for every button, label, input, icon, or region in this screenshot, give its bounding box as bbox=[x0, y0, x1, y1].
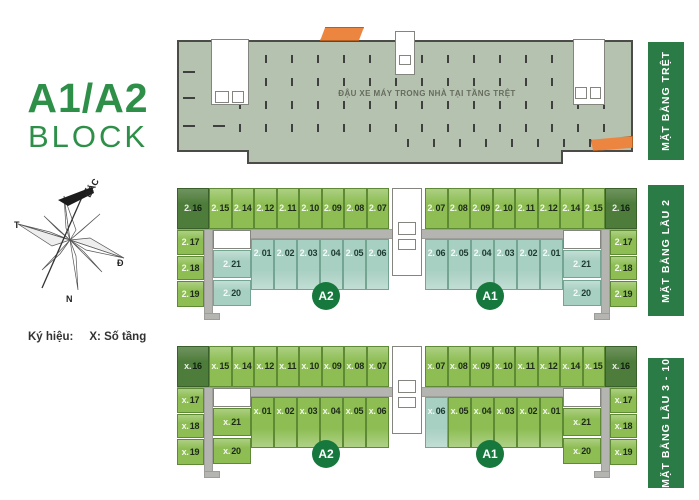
unit-a2-2-08: 2.08 bbox=[344, 188, 367, 229]
unit-floor-prefix: 2. bbox=[182, 238, 189, 247]
compass-rose: BẮC T Đ N bbox=[14, 176, 126, 304]
unit-a2-2-10: 2.10 bbox=[299, 188, 322, 229]
unit-floor-prefix: x. bbox=[301, 362, 308, 371]
unit-floor-prefix: x. bbox=[324, 362, 331, 371]
unit-number: 07 bbox=[435, 204, 445, 213]
unit-floor-prefix: x. bbox=[300, 407, 307, 416]
unit-a1-x-01: x.01 bbox=[540, 397, 563, 448]
stair-core-left-room bbox=[215, 91, 229, 103]
unit-number: 21 bbox=[231, 260, 241, 269]
unit-number: 11 bbox=[526, 362, 535, 371]
unit-a1-2-05: 2.05 bbox=[448, 239, 471, 290]
elevator-cab bbox=[398, 222, 416, 235]
unit-a2-2-05: 2.05 bbox=[343, 239, 366, 290]
unit-floor-prefix: 2. bbox=[256, 204, 263, 213]
unit-a1-x-02: x.02 bbox=[517, 397, 540, 448]
stair-core-left-room bbox=[232, 91, 244, 103]
unit-number: 17 bbox=[190, 238, 200, 247]
unit-floor-prefix: 2. bbox=[518, 204, 525, 213]
unit-number: 16 bbox=[620, 204, 630, 213]
unit-a1-x-18: x.18 bbox=[610, 414, 637, 438]
unit-number: 18 bbox=[190, 264, 200, 273]
unit-number: 09 bbox=[332, 362, 342, 371]
unit-a2-x-15: x.15 bbox=[209, 346, 232, 387]
unit-number: 01 bbox=[551, 249, 561, 258]
unit-number: 18 bbox=[623, 422, 633, 431]
unit-floor-prefix: 2. bbox=[277, 249, 284, 258]
unit-floor-prefix: 2. bbox=[585, 204, 592, 213]
block-name: A1/A2 bbox=[8, 78, 168, 119]
unit-number: 14 bbox=[570, 204, 580, 213]
corridor-vertical bbox=[601, 387, 610, 473]
side-label-ground-text: MẶT BẰNG TRỆT bbox=[660, 51, 672, 151]
unit-number: 11 bbox=[526, 204, 535, 213]
compass-north-label: BẮC bbox=[83, 177, 101, 199]
unit-number: 08 bbox=[458, 204, 468, 213]
unit-number: 20 bbox=[231, 289, 241, 298]
unit-floor-prefix: x. bbox=[612, 362, 619, 371]
unit-floor-prefix: 2. bbox=[300, 249, 307, 258]
unit-number: 12 bbox=[548, 362, 558, 371]
unit-number: 08 bbox=[458, 362, 468, 371]
unit-floor-prefix: 2. bbox=[346, 204, 353, 213]
side-label-level-2: MẶT BẰNG LẦU 2 bbox=[648, 185, 684, 316]
unit-a1-x-06: x.06 bbox=[425, 397, 448, 448]
unit-floor-prefix: 2. bbox=[211, 204, 218, 213]
compass-east-label: Đ bbox=[117, 258, 124, 268]
unit-number: 10 bbox=[309, 362, 319, 371]
unit-a2-2-18: 2.18 bbox=[177, 256, 204, 280]
unit-floor-prefix: 2. bbox=[254, 249, 261, 258]
unit-a2-x-14: x.14 bbox=[232, 346, 255, 387]
unit-number: 05 bbox=[354, 249, 364, 258]
unit-a2-x-20: x.20 bbox=[213, 438, 251, 464]
unit-a1-2-16: 2.16 bbox=[605, 188, 637, 229]
unit-floor-prefix: 2. bbox=[497, 249, 504, 258]
unit-floor-prefix: 2. bbox=[234, 204, 241, 213]
unit-number: 16 bbox=[192, 362, 202, 371]
unit-a2-x-03: x.03 bbox=[297, 397, 320, 448]
unit-floor-prefix: 2. bbox=[369, 204, 376, 213]
unit-a2-2-17: 2.17 bbox=[177, 230, 204, 255]
parking-dashes-row bbox=[183, 125, 235, 127]
unit-number: 04 bbox=[482, 249, 492, 258]
unit-floor-prefix: 2. bbox=[520, 249, 527, 258]
elevator-core-center bbox=[395, 31, 415, 75]
unit-floor-prefix: 2. bbox=[301, 204, 308, 213]
unit-number: 17 bbox=[623, 238, 633, 247]
unit-a1-2-11: 2.11 bbox=[515, 188, 538, 229]
unit-a1-x-15: x.15 bbox=[583, 346, 606, 387]
unit-a2-x-02: x.02 bbox=[274, 397, 297, 448]
elevator-cab bbox=[398, 239, 416, 250]
unit-a1-x-03: x.03 bbox=[494, 397, 517, 448]
elevator-cab bbox=[398, 397, 416, 408]
stair-core-right-room bbox=[575, 87, 587, 99]
unit-a1-2-17: 2.17 bbox=[610, 230, 637, 255]
unit-floor-prefix: x. bbox=[223, 418, 230, 427]
block-word: BLOCK bbox=[8, 121, 168, 152]
unit-a1-2-12: 2.12 bbox=[538, 188, 561, 229]
unit-floor-prefix: x. bbox=[518, 362, 525, 371]
unit-number: 01 bbox=[262, 249, 272, 258]
unit-number: 20 bbox=[581, 447, 591, 456]
floor-plan-level-3-10: x.16x.15x.14x.12x.11x.10x.09x.08x.07x.01… bbox=[176, 344, 638, 484]
unit-number: 07 bbox=[435, 362, 445, 371]
unit-a1-2-08: 2.08 bbox=[448, 188, 471, 229]
unit-number: 18 bbox=[190, 422, 200, 431]
unit-a1-2-03: 2.03 bbox=[494, 239, 517, 290]
unit-number: 06 bbox=[377, 249, 387, 258]
unit-a1-x-12: x.12 bbox=[538, 346, 561, 387]
compass-west-label: T bbox=[14, 220, 20, 230]
unit-floor-prefix: x. bbox=[615, 422, 622, 431]
unit-a2-2-03: 2.03 bbox=[297, 239, 320, 290]
unit-floor-prefix: x. bbox=[182, 448, 189, 457]
unit-number: 19 bbox=[190, 290, 200, 299]
unit-floor-prefix: x. bbox=[184, 362, 191, 371]
unit-floor-prefix: x. bbox=[497, 407, 504, 416]
parking-note: ĐẬU XE MÁY TRONG NHÀ TẠI TẦNG TRỆT bbox=[327, 89, 527, 98]
unit-number: 10 bbox=[309, 204, 319, 213]
unit-a2-2-21: 2.21 bbox=[213, 250, 251, 278]
unit-number: 06 bbox=[436, 407, 446, 416]
parking-dashes-row bbox=[239, 55, 621, 63]
unit-a2-x-09: x.09 bbox=[322, 346, 345, 387]
unit-a1-x-19: x.19 bbox=[610, 439, 637, 465]
unit-number: 10 bbox=[503, 204, 513, 213]
unit-floor-prefix: x. bbox=[234, 362, 241, 371]
unit-floor-prefix: x. bbox=[277, 407, 284, 416]
stair-core bbox=[563, 388, 601, 407]
wing-badge-a2: A2 bbox=[312, 282, 340, 310]
wing-badge-a1: A1 bbox=[476, 282, 504, 310]
unit-floor-prefix: x. bbox=[472, 362, 479, 371]
unit-number: 03 bbox=[505, 249, 515, 258]
unit-number: 16 bbox=[620, 362, 630, 371]
unit-floor-prefix: x. bbox=[427, 362, 434, 371]
unit-floor-prefix: x. bbox=[279, 362, 286, 371]
unit-number: 12 bbox=[264, 204, 274, 213]
floor-plan-level-2: 2.162.152.142.122.112.102.092.082.072.01… bbox=[176, 186, 638, 326]
stair-tab bbox=[204, 471, 220, 478]
unit-floor-prefix: x. bbox=[474, 407, 481, 416]
unit-a1-x-17: x.17 bbox=[610, 388, 637, 413]
unit-floor-prefix: 2. bbox=[323, 249, 330, 258]
unit-floor-prefix: 2. bbox=[223, 289, 230, 298]
unit-a1-2-19: 2.19 bbox=[610, 281, 637, 307]
unit-floor-prefix: x. bbox=[520, 407, 527, 416]
unit-floor-prefix: x. bbox=[495, 362, 502, 371]
unit-a2-x-07: x.07 bbox=[367, 346, 390, 387]
legend: Ký hiệu:X: Số tầng bbox=[28, 331, 146, 343]
stair-core-right-room bbox=[590, 87, 601, 99]
unit-floor-prefix: x. bbox=[323, 407, 330, 416]
unit-floor-prefix: 2. bbox=[182, 290, 189, 299]
unit-number: 10 bbox=[503, 362, 513, 371]
unit-number: 15 bbox=[219, 362, 229, 371]
unit-number: 15 bbox=[593, 362, 603, 371]
block-title: A1/A2 BLOCK bbox=[8, 78, 168, 152]
unit-a1-2-15: 2.15 bbox=[583, 188, 606, 229]
parking-area-extension bbox=[247, 150, 563, 164]
unit-number: 02 bbox=[285, 407, 295, 416]
ramp-top bbox=[320, 27, 364, 41]
unit-floor-prefix: 2. bbox=[346, 249, 353, 258]
unit-a2-2-15: 2.15 bbox=[209, 188, 232, 229]
unit-number: 19 bbox=[623, 290, 633, 299]
unit-number: 08 bbox=[354, 362, 364, 371]
unit-a1-x-16: x.16 bbox=[605, 346, 637, 387]
unit-floor-prefix: x. bbox=[256, 362, 263, 371]
unit-a2-x-06: x.06 bbox=[366, 397, 389, 448]
unit-a2-2-19: 2.19 bbox=[177, 281, 204, 307]
unit-floor-prefix: 2. bbox=[543, 249, 550, 258]
stair-core bbox=[213, 230, 251, 249]
unit-a1-2-02: 2.02 bbox=[517, 239, 540, 290]
floorplan-infographic: A1/A2 BLOCK BẮC T Đ N Ký hiệu:X: Số tầng bbox=[0, 0, 699, 500]
parking-dashes-row bbox=[239, 101, 621, 109]
unit-number: 12 bbox=[548, 204, 558, 213]
unit-number: 06 bbox=[436, 249, 446, 258]
stair-tab bbox=[204, 313, 220, 320]
unit-number: 03 bbox=[308, 249, 318, 258]
wing-badge-a1: A1 bbox=[476, 440, 504, 468]
parking-dashes-row bbox=[239, 124, 621, 132]
unit-floor-prefix: 2. bbox=[615, 238, 622, 247]
unit-floor-prefix: x. bbox=[562, 362, 569, 371]
unit-a2-x-05: x.05 bbox=[343, 397, 366, 448]
unit-number: 14 bbox=[242, 362, 252, 371]
unit-number: 18 bbox=[623, 264, 633, 273]
unit-a2-2-06: 2.06 bbox=[366, 239, 389, 290]
unit-number: 03 bbox=[505, 407, 515, 416]
unit-floor-prefix: x. bbox=[346, 362, 353, 371]
unit-floor-prefix: x. bbox=[254, 407, 261, 416]
unit-number: 02 bbox=[528, 407, 538, 416]
corridor-vertical bbox=[204, 387, 213, 473]
side-label-level-3-10: MẶT BẰNG LẦU 3 - 10 bbox=[648, 358, 684, 488]
unit-number: 20 bbox=[581, 289, 591, 298]
unit-a2-x-18: x.18 bbox=[177, 414, 204, 438]
unit-a2-x-08: x.08 bbox=[344, 346, 367, 387]
unit-number: 04 bbox=[331, 249, 341, 258]
stair-tab bbox=[594, 313, 610, 320]
unit-floor-prefix: 2. bbox=[540, 204, 547, 213]
unit-a1-x-20: x.20 bbox=[563, 438, 601, 464]
legend-label: Ký hiệu: bbox=[28, 331, 73, 343]
unit-number: 17 bbox=[623, 396, 633, 405]
unit-a1-x-21: x.21 bbox=[563, 408, 601, 436]
ground-floor-plan: ĐẬU XE MÁY TRONG NHÀ TẠI TẦNG TRỆT bbox=[177, 27, 635, 167]
unit-floor-prefix: 2. bbox=[573, 260, 580, 269]
unit-number: 01 bbox=[551, 407, 561, 416]
unit-floor-prefix: x. bbox=[182, 396, 189, 405]
unit-floor-prefix: 2. bbox=[573, 289, 580, 298]
elevator-cab bbox=[398, 380, 416, 393]
unit-a2-x-12: x.12 bbox=[254, 346, 277, 387]
unit-number: 09 bbox=[480, 362, 490, 371]
unit-floor-prefix: 2. bbox=[184, 204, 191, 213]
unit-floor-prefix: x. bbox=[182, 422, 189, 431]
unit-floor-prefix: 2. bbox=[615, 290, 622, 299]
unit-number: 14 bbox=[570, 362, 580, 371]
unit-a2-2-07: 2.07 bbox=[367, 188, 390, 229]
unit-floor-prefix: x. bbox=[450, 362, 457, 371]
unit-a2-2-02: 2.02 bbox=[274, 239, 297, 290]
unit-floor-prefix: x. bbox=[428, 407, 435, 416]
unit-floor-prefix: 2. bbox=[615, 264, 622, 273]
side-label-level-3-10-text: MẶT BẰNG LẦU 3 - 10 bbox=[660, 358, 672, 488]
unit-floor-prefix: x. bbox=[573, 418, 580, 427]
unit-number: 04 bbox=[482, 407, 492, 416]
unit-floor-prefix: x. bbox=[585, 362, 592, 371]
unit-floor-prefix: 2. bbox=[369, 249, 376, 258]
unit-floor-prefix: x. bbox=[451, 407, 458, 416]
unit-a2-2-11: 2.11 bbox=[277, 188, 300, 229]
unit-floor-prefix: 2. bbox=[472, 204, 479, 213]
unit-number: 02 bbox=[528, 249, 538, 258]
unit-floor-prefix: 2. bbox=[182, 264, 189, 273]
unit-number: 12 bbox=[264, 362, 274, 371]
unit-number: 21 bbox=[231, 418, 241, 427]
unit-floor-prefix: x. bbox=[540, 362, 547, 371]
unit-number: 19 bbox=[190, 448, 200, 457]
unit-number: 19 bbox=[623, 448, 633, 457]
unit-floor-prefix: 2. bbox=[495, 204, 502, 213]
unit-a2-2-16: 2.16 bbox=[177, 188, 209, 229]
unit-floor-prefix: x. bbox=[346, 407, 353, 416]
unit-floor-prefix: x. bbox=[369, 362, 376, 371]
unit-number: 01 bbox=[262, 407, 272, 416]
unit-a2-x-19: x.19 bbox=[177, 439, 204, 465]
unit-a2-2-01: 2.01 bbox=[251, 239, 274, 290]
unit-a2-2-09: 2.09 bbox=[322, 188, 345, 229]
stair-core bbox=[563, 230, 601, 249]
unit-a1-x-07: x.07 bbox=[425, 346, 448, 387]
unit-a2-x-17: x.17 bbox=[177, 388, 204, 413]
unit-a1-2-18: 2.18 bbox=[610, 256, 637, 280]
unit-a2-x-11: x.11 bbox=[277, 346, 300, 387]
unit-a1-x-09: x.09 bbox=[470, 346, 493, 387]
legend-value: X: Số tầng bbox=[89, 331, 146, 343]
unit-number: 07 bbox=[377, 204, 387, 213]
unit-number: 05 bbox=[459, 407, 469, 416]
unit-number: 09 bbox=[332, 204, 342, 213]
unit-a1-x-14: x.14 bbox=[560, 346, 583, 387]
unit-floor-prefix: x. bbox=[369, 407, 376, 416]
unit-a2-x-10: x.10 bbox=[299, 346, 322, 387]
unit-floor-prefix: 2. bbox=[223, 260, 230, 269]
unit-number: 05 bbox=[354, 407, 364, 416]
unit-number: 03 bbox=[308, 407, 318, 416]
unit-floor-prefix: 2. bbox=[427, 204, 434, 213]
unit-number: 07 bbox=[377, 362, 387, 371]
unit-number: 09 bbox=[480, 204, 490, 213]
unit-a2-x-21: x.21 bbox=[213, 408, 251, 436]
unit-floor-prefix: x. bbox=[223, 447, 230, 456]
unit-floor-prefix: 2. bbox=[474, 249, 481, 258]
unit-number: 11 bbox=[287, 204, 296, 213]
unit-number: 02 bbox=[285, 249, 295, 258]
side-label-ground: MẶT BẰNG TRỆT bbox=[648, 42, 684, 160]
stair-core bbox=[213, 388, 251, 407]
unit-a2-2-12: 2.12 bbox=[254, 188, 277, 229]
unit-number: 08 bbox=[354, 204, 364, 213]
unit-a1-2-01: 2.01 bbox=[540, 239, 563, 290]
unit-floor-prefix: 2. bbox=[562, 204, 569, 213]
stair-tab bbox=[594, 471, 610, 478]
unit-a1-2-20: 2.20 bbox=[563, 280, 601, 306]
unit-a1-2-14: 2.14 bbox=[560, 188, 583, 229]
wing-badge-a2: A2 bbox=[312, 440, 340, 468]
unit-number: 15 bbox=[219, 204, 229, 213]
unit-a2-2-20: 2.20 bbox=[213, 280, 251, 306]
unit-floor-prefix: 2. bbox=[279, 204, 286, 213]
unit-floor-prefix: x. bbox=[211, 362, 218, 371]
unit-number: 14 bbox=[242, 204, 252, 213]
unit-number: 05 bbox=[459, 249, 469, 258]
unit-floor-prefix: x. bbox=[615, 396, 622, 405]
unit-number: 21 bbox=[581, 418, 591, 427]
unit-floor-prefix: 2. bbox=[428, 249, 435, 258]
corridor-vertical bbox=[601, 229, 610, 315]
unit-number: 06 bbox=[377, 407, 387, 416]
unit-floor-prefix: 2. bbox=[324, 204, 331, 213]
elevator-core-center-cab bbox=[399, 55, 411, 65]
unit-number: 17 bbox=[190, 396, 200, 405]
side-label-level-2-text: MẶT BẰNG LẦU 2 bbox=[660, 199, 672, 303]
unit-number: 21 bbox=[581, 260, 591, 269]
unit-a1-x-08: x.08 bbox=[448, 346, 471, 387]
unit-a1-2-09: 2.09 bbox=[470, 188, 493, 229]
unit-a2-x-16: x.16 bbox=[177, 346, 209, 387]
parking-dashes-row bbox=[407, 139, 621, 147]
unit-number: 16 bbox=[192, 204, 202, 213]
unit-a1-2-06: 2.06 bbox=[425, 239, 448, 290]
corridor-vertical bbox=[204, 229, 213, 315]
unit-floor-prefix: x. bbox=[573, 447, 580, 456]
unit-a1-x-11: x.11 bbox=[515, 346, 538, 387]
unit-a1-2-10: 2.10 bbox=[493, 188, 516, 229]
unit-number: 15 bbox=[593, 204, 603, 213]
unit-floor-prefix: 2. bbox=[450, 204, 457, 213]
unit-floor-prefix: x. bbox=[543, 407, 550, 416]
unit-floor-prefix: x. bbox=[615, 448, 622, 457]
compass-south-label: N bbox=[66, 294, 73, 304]
unit-a2-2-14: 2.14 bbox=[232, 188, 255, 229]
unit-floor-prefix: 2. bbox=[451, 249, 458, 258]
unit-floor-prefix: 2. bbox=[612, 204, 619, 213]
unit-a1-x-10: x.10 bbox=[493, 346, 516, 387]
unit-number: 04 bbox=[331, 407, 341, 416]
unit-a2-x-01: x.01 bbox=[251, 397, 274, 448]
unit-a1-x-05: x.05 bbox=[448, 397, 471, 448]
unit-number: 20 bbox=[231, 447, 241, 456]
unit-a1-2-21: 2.21 bbox=[563, 250, 601, 278]
unit-number: 11 bbox=[287, 362, 296, 371]
parking-dashes-row bbox=[239, 78, 621, 86]
unit-a1-2-07: 2.07 bbox=[425, 188, 448, 229]
